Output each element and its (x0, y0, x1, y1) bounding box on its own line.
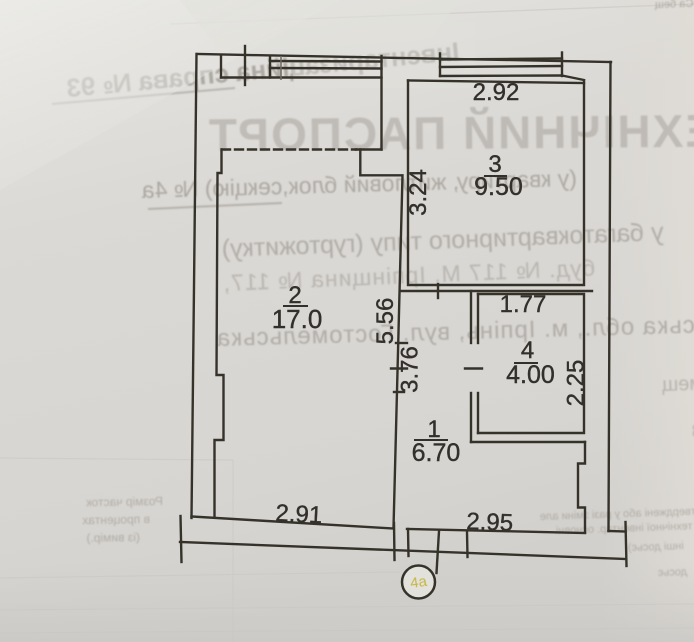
svg-text:9.50: 9.50 (474, 173, 523, 201)
svg-text:в процентах: в процентах (82, 512, 150, 527)
svg-text:6.70: 6.70 (412, 439, 461, 467)
svg-text:Са бещ: Са бещ (655, 0, 694, 11)
svg-text:досьє: досьє (657, 566, 687, 579)
svg-text:4а: 4а (409, 573, 429, 592)
svg-text:5.56: 5.56 (372, 298, 399, 345)
svg-text:4.00: 4.00 (506, 361, 555, 389)
svg-text:(із вимір.): (із вимір.) (86, 530, 140, 545)
svg-text:4: 4 (521, 337, 534, 364)
svg-text:Розмір часток: Розмір часток (85, 494, 163, 509)
svg-text:3.76: 3.76 (397, 346, 424, 393)
svg-text:17.0: 17.0 (272, 304, 323, 334)
svg-text:3.24: 3.24 (405, 169, 432, 216)
svg-text:2.92: 2.92 (473, 79, 520, 106)
svg-text:ТЕХНІЧНИЙ ПАСПОРТ: ТЕХНІЧНИЙ ПАСПОРТ (207, 104, 694, 161)
svg-text:2.25: 2.25 (563, 360, 590, 407)
svg-text:2.91: 2.91 (275, 500, 323, 529)
svg-text:мещ: мещ (661, 373, 694, 396)
svg-text:2.95: 2.95 (466, 508, 514, 537)
svg-text:1.77: 1.77 (500, 291, 547, 318)
svg-text:інші досьє): інші досьє) (628, 540, 684, 554)
